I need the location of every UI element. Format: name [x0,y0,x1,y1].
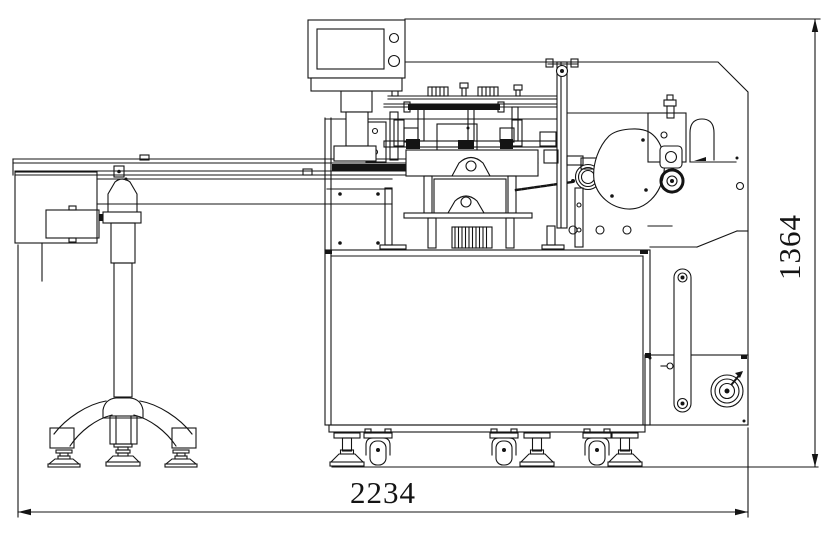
machine-cabinet [325,250,650,432]
machine-drawing-svg: 2234 1364 [0,0,835,535]
hmi-column [334,91,376,161]
handwheel [711,371,743,407]
cam-cover [567,129,664,234]
technical-drawing-sheet: 2234 1364 [0,0,835,535]
electrical-box [15,172,99,281]
conveyor-stand [48,178,197,468]
casters [364,429,611,465]
hmi-panel [308,20,405,91]
dimension-height: 1364 [405,19,820,467]
dimension-length-label: 2234 [350,475,416,510]
dimension-height-label: 1364 [772,214,807,280]
dimension-length: 2234 [18,245,748,517]
film-guide-pole [540,59,578,228]
